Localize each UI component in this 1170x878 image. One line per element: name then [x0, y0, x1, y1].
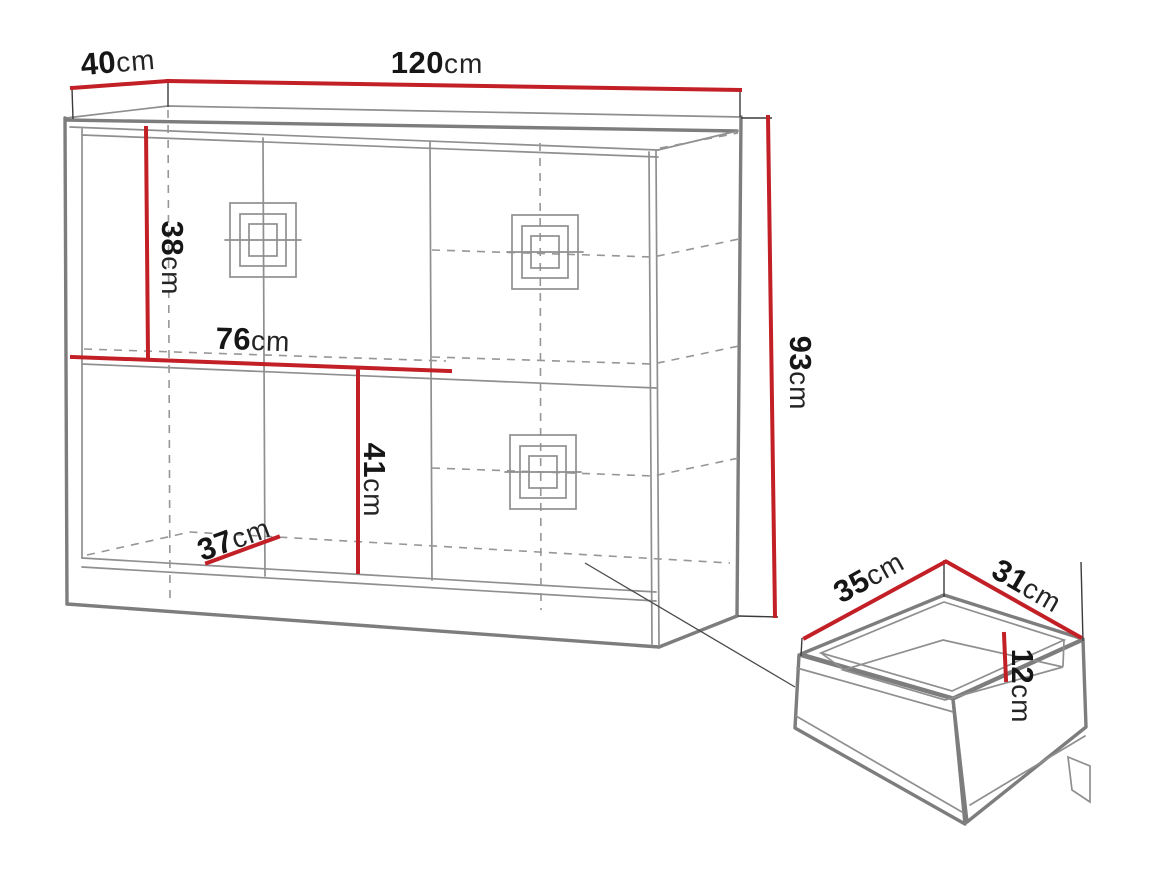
dim-label-width: 120cm	[391, 45, 484, 80]
cabinet-front-right-edge-inner	[649, 152, 652, 644]
cabinet-left-outer-edge	[65, 118, 67, 604]
dim-label-drawer-height: 12cm	[1005, 649, 1040, 724]
cabinet-top-right-edge	[658, 131, 737, 150]
dimension-diagram-page: 40cm 120cm 93cm 38cm 76cm 41cm 37cm 35cm…	[0, 0, 1170, 878]
dim-line-interior-width-76	[72, 357, 450, 371]
dim-label-lower-interior-height: 41cm	[357, 443, 392, 518]
hidden-drawer2-bottom	[432, 458, 739, 476]
dim-line-height-93	[768, 117, 775, 616]
dim-label-drawer-width: 35cm	[828, 543, 910, 610]
drawer-detail	[795, 595, 1090, 824]
dim-label-height: 93cm	[783, 336, 818, 411]
dimension-lines	[72, 81, 1080, 680]
cabinet-top-front-edge	[66, 120, 737, 131]
drawer-bottom-handle	[505, 435, 581, 509]
dim-line-width-120	[168, 81, 740, 90]
cabinet-back-right-edge	[737, 117, 741, 616]
dim-label-upper-interior-height: 38cm	[155, 221, 190, 296]
dim-label-interior-depth: 37cm	[193, 509, 275, 567]
hidden-drawer1-bottom	[432, 346, 739, 364]
cabinet-bottom-right-edge	[659, 616, 737, 647]
dim-line-upper-interior-38	[146, 128, 148, 357]
cabinet-outline	[65, 106, 741, 647]
dim-label-interior-width: 76cm	[215, 321, 291, 359]
drawer-top-handle	[507, 215, 583, 289]
drawer-runner-foot	[1068, 757, 1090, 802]
dim-line-depth-40	[72, 81, 168, 88]
cabinet-bottom-outer-edge	[67, 604, 659, 647]
hidden-back-left-edge	[168, 110, 170, 598]
cabinet-bottom-panel-top-edge	[82, 558, 656, 592]
door-handle	[225, 203, 301, 277]
hidden-drawer1-top	[432, 239, 739, 257]
hidden-drawer-centerline	[540, 143, 541, 610]
drawer-callout-line	[585, 563, 795, 687]
cabinet-bottom-panel-bottom-edge	[82, 567, 656, 601]
hidden-bottom-back-edge	[87, 532, 730, 563]
cabinet-front-right-edge-outer	[656, 151, 659, 646]
dim-label-depth: 40cm	[79, 41, 157, 82]
dimension-diagram: 40cm 120cm 93cm 38cm 76cm 41cm 37cm 35cm…	[0, 0, 1170, 878]
drawer-interior-corner-right	[1063, 640, 1064, 666]
